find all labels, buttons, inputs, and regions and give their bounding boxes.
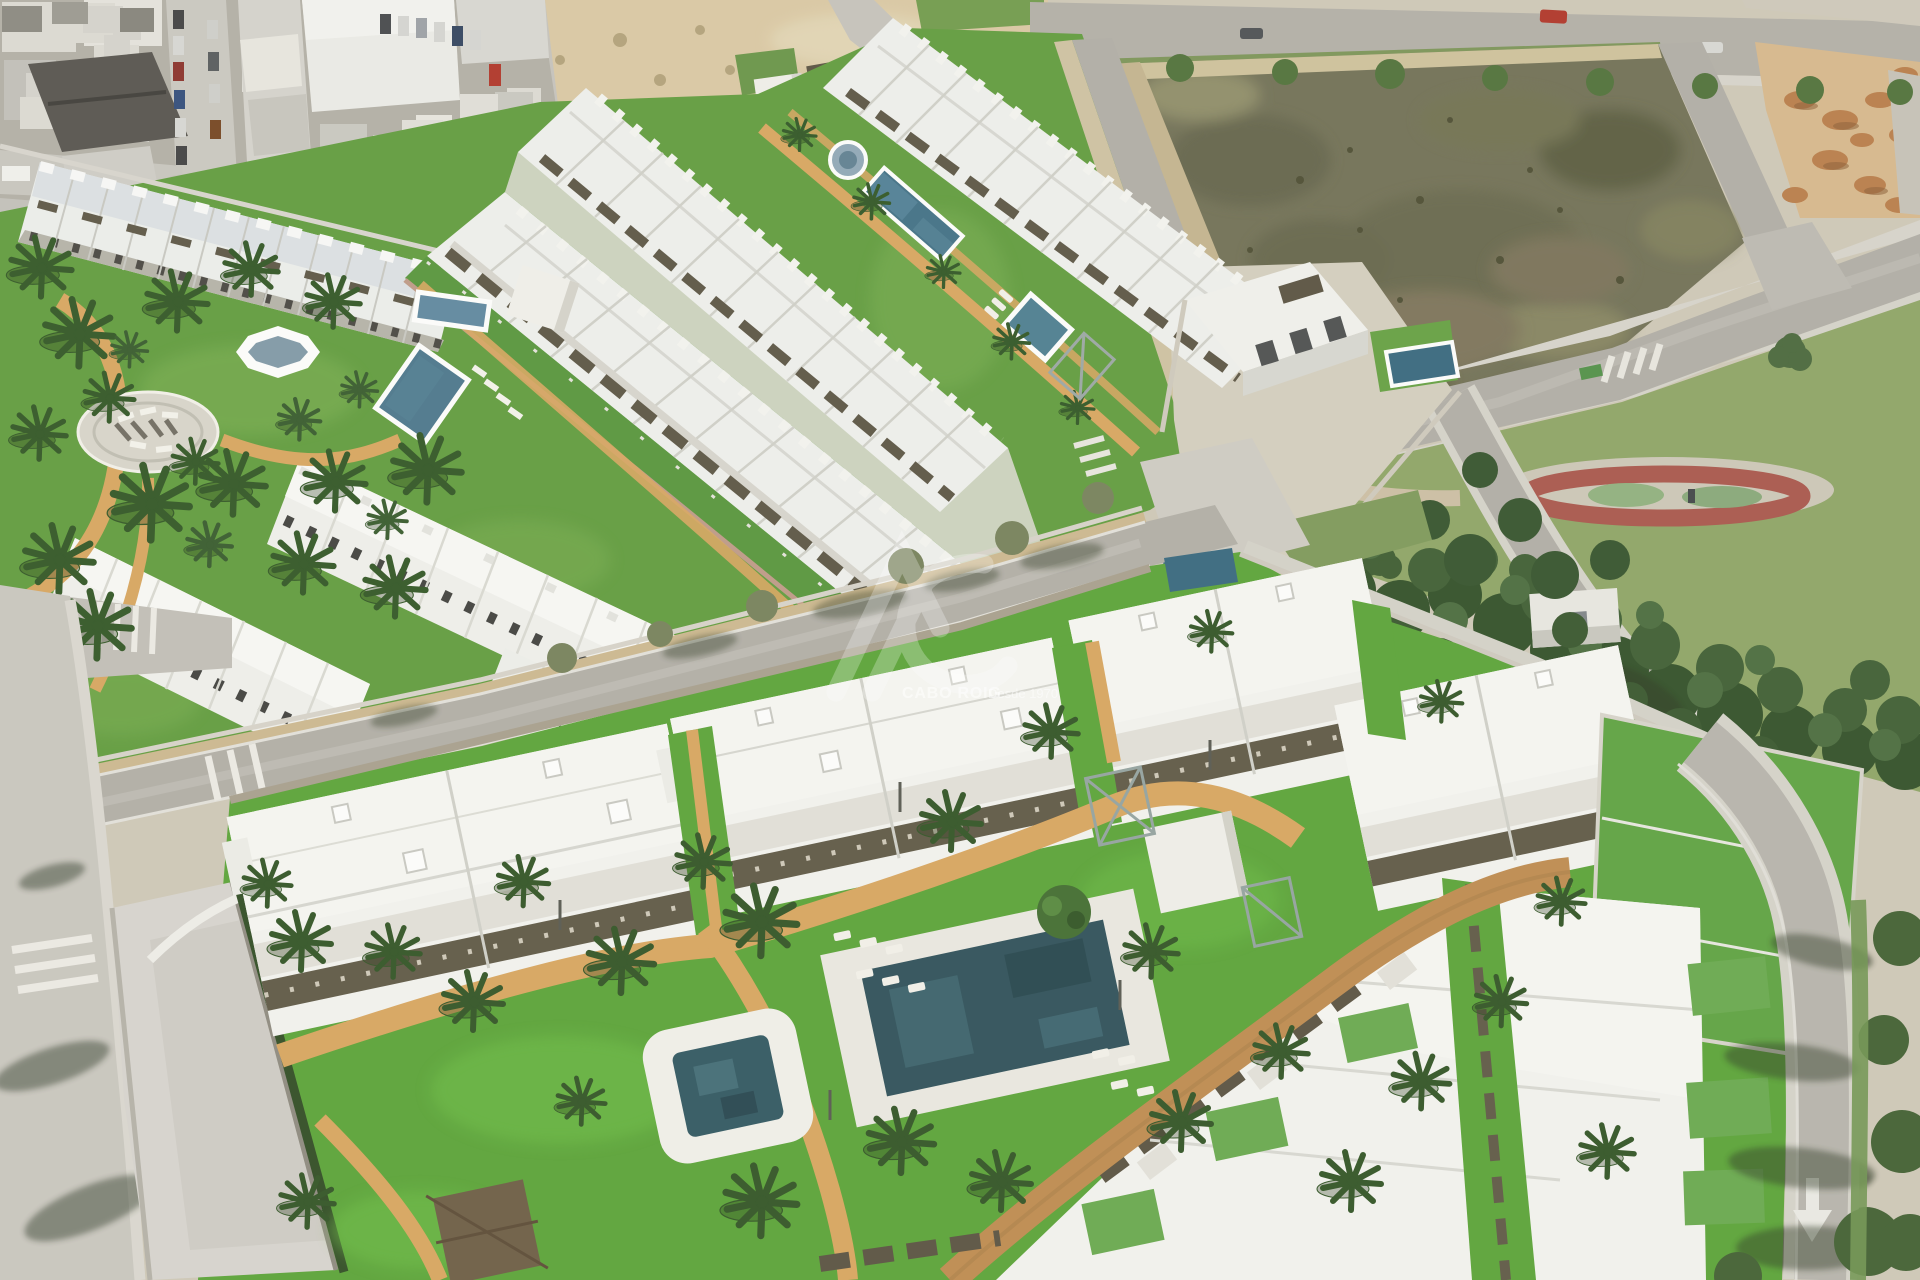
svg-text:Desde 1970: Desde 1970: [988, 686, 1058, 701]
svg-text:CABO ROIG: CABO ROIG: [902, 685, 1002, 702]
